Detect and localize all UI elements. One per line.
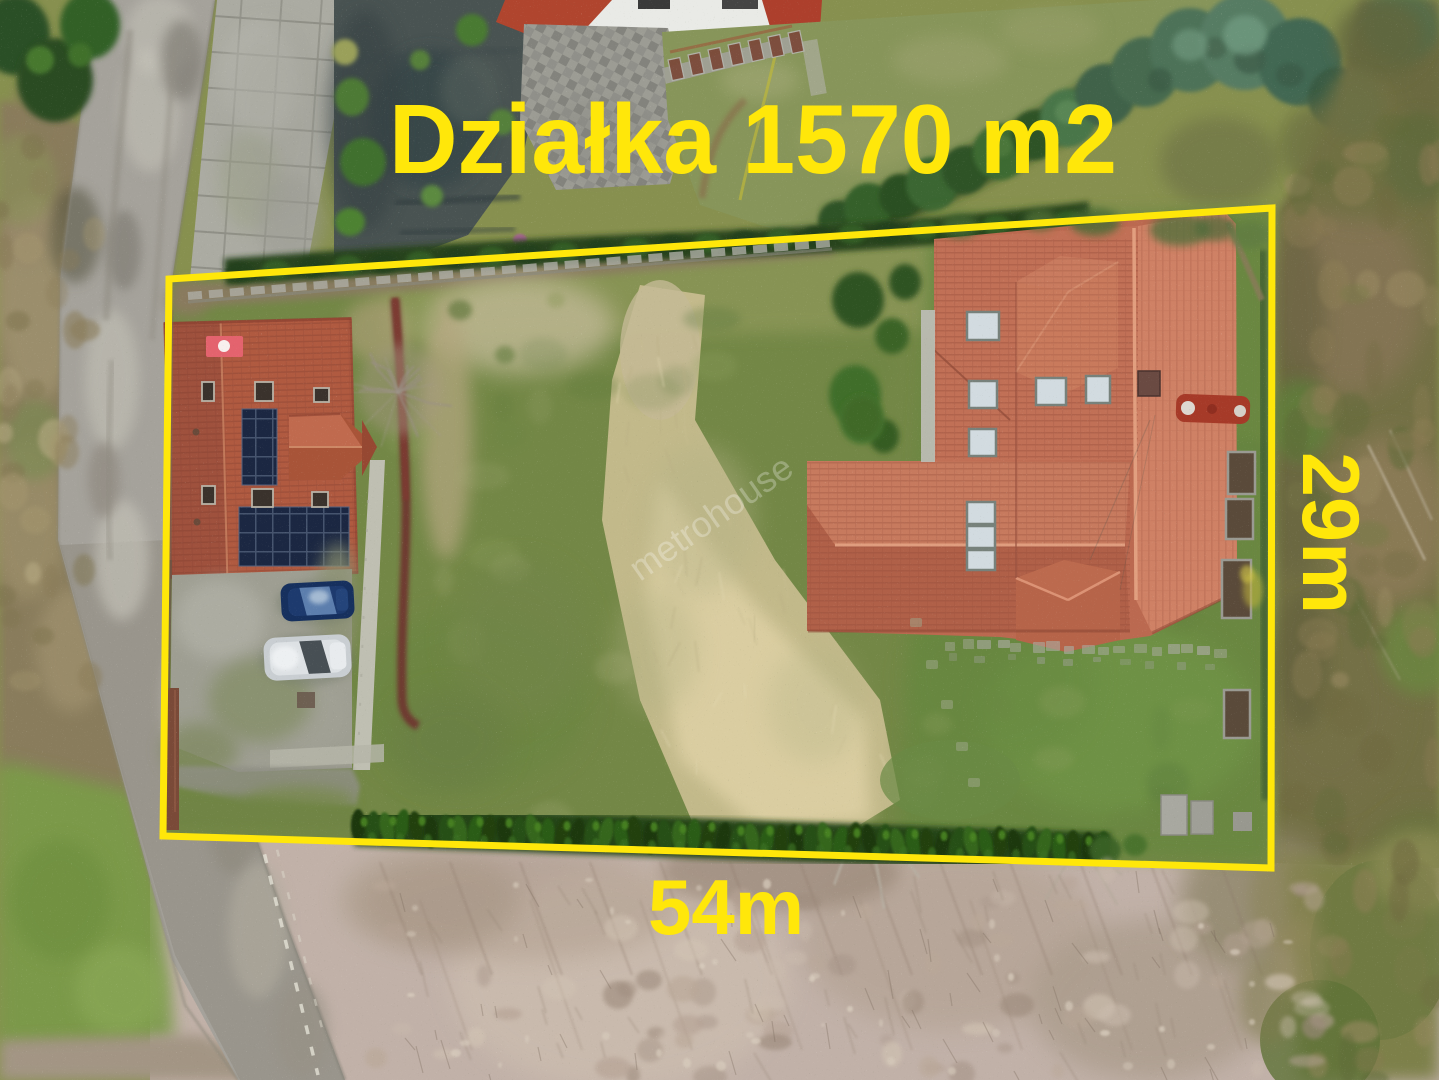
svg-text:Działka 1570 m2: Działka 1570 m2 <box>389 84 1117 194</box>
svg-text:54m: 54m <box>648 863 804 951</box>
svg-text:29m: 29m <box>1285 452 1375 614</box>
